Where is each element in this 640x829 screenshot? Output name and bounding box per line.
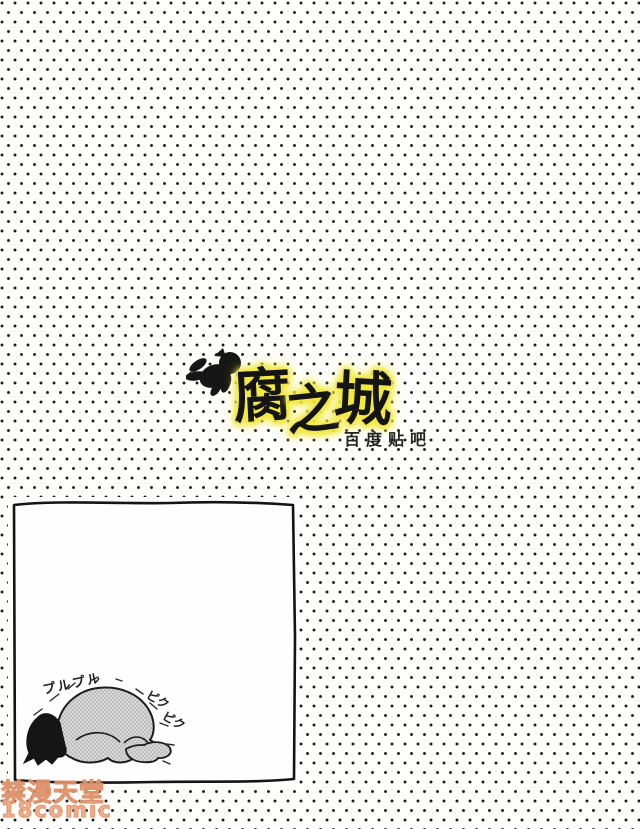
logo-char-2: 之 [283,381,337,441]
watermark-line2: 18comic [1,800,113,821]
logo-group: 腐 之 城 百度贴吧 [0,0,640,460]
logo-subtitle: 百度贴吧 [344,426,432,450]
watermark: 禁漫天堂 18comic [1,780,113,821]
logo-char-3: 城 [332,368,388,432]
manga-page-background: 腐 之 城 百度贴吧 [0,0,640,829]
panel-artwork [8,497,299,787]
logo-title: 腐 之 城 [233,366,387,427]
logo-char-1: 腐 [231,365,287,429]
manga-panel: プルプル ピク ピク [8,497,299,787]
